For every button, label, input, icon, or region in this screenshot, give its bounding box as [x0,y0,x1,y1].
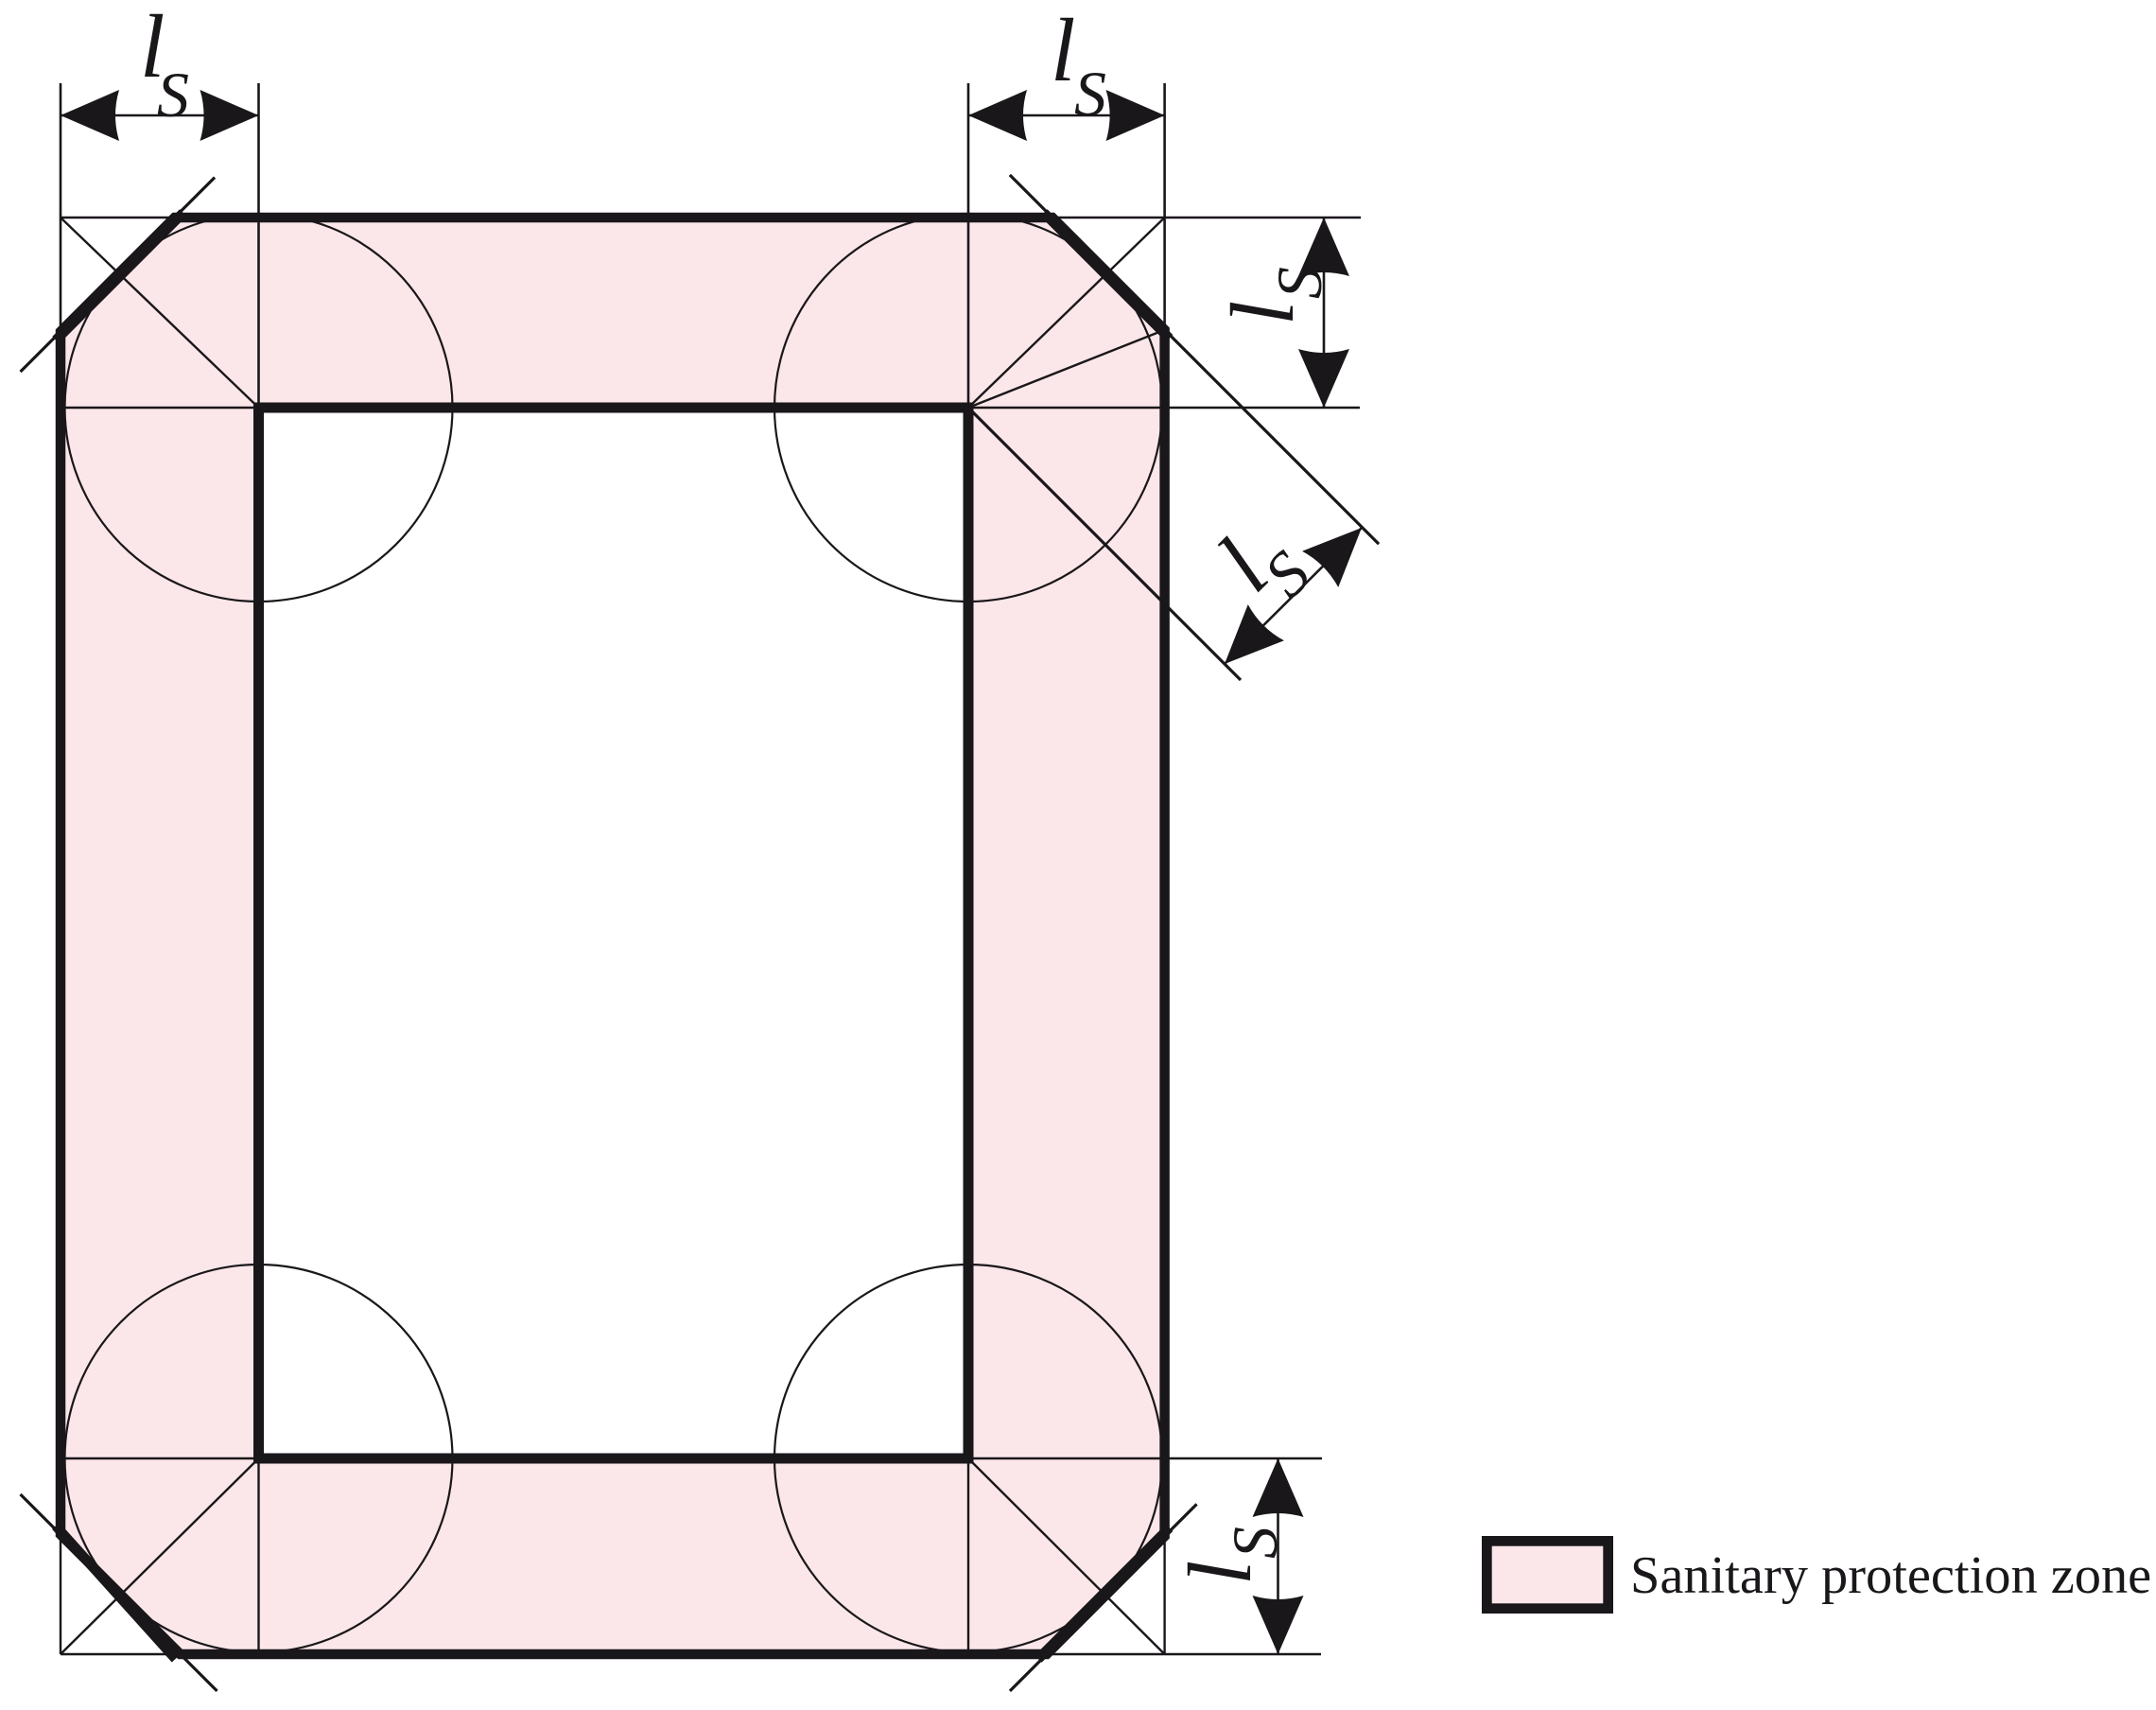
svg-text:S: S [1074,58,1106,130]
svg-text:Sanitary protection zone: Sanitary protection zone [1630,1546,2151,1605]
svg-text:S: S [1263,267,1335,299]
svg-text:l: l [1051,0,1075,100]
svg-text:S: S [157,59,189,131]
svg-text:S: S [1219,1527,1291,1559]
svg-text:l: l [1170,1561,1270,1585]
svg-text:l: l [1212,301,1313,325]
